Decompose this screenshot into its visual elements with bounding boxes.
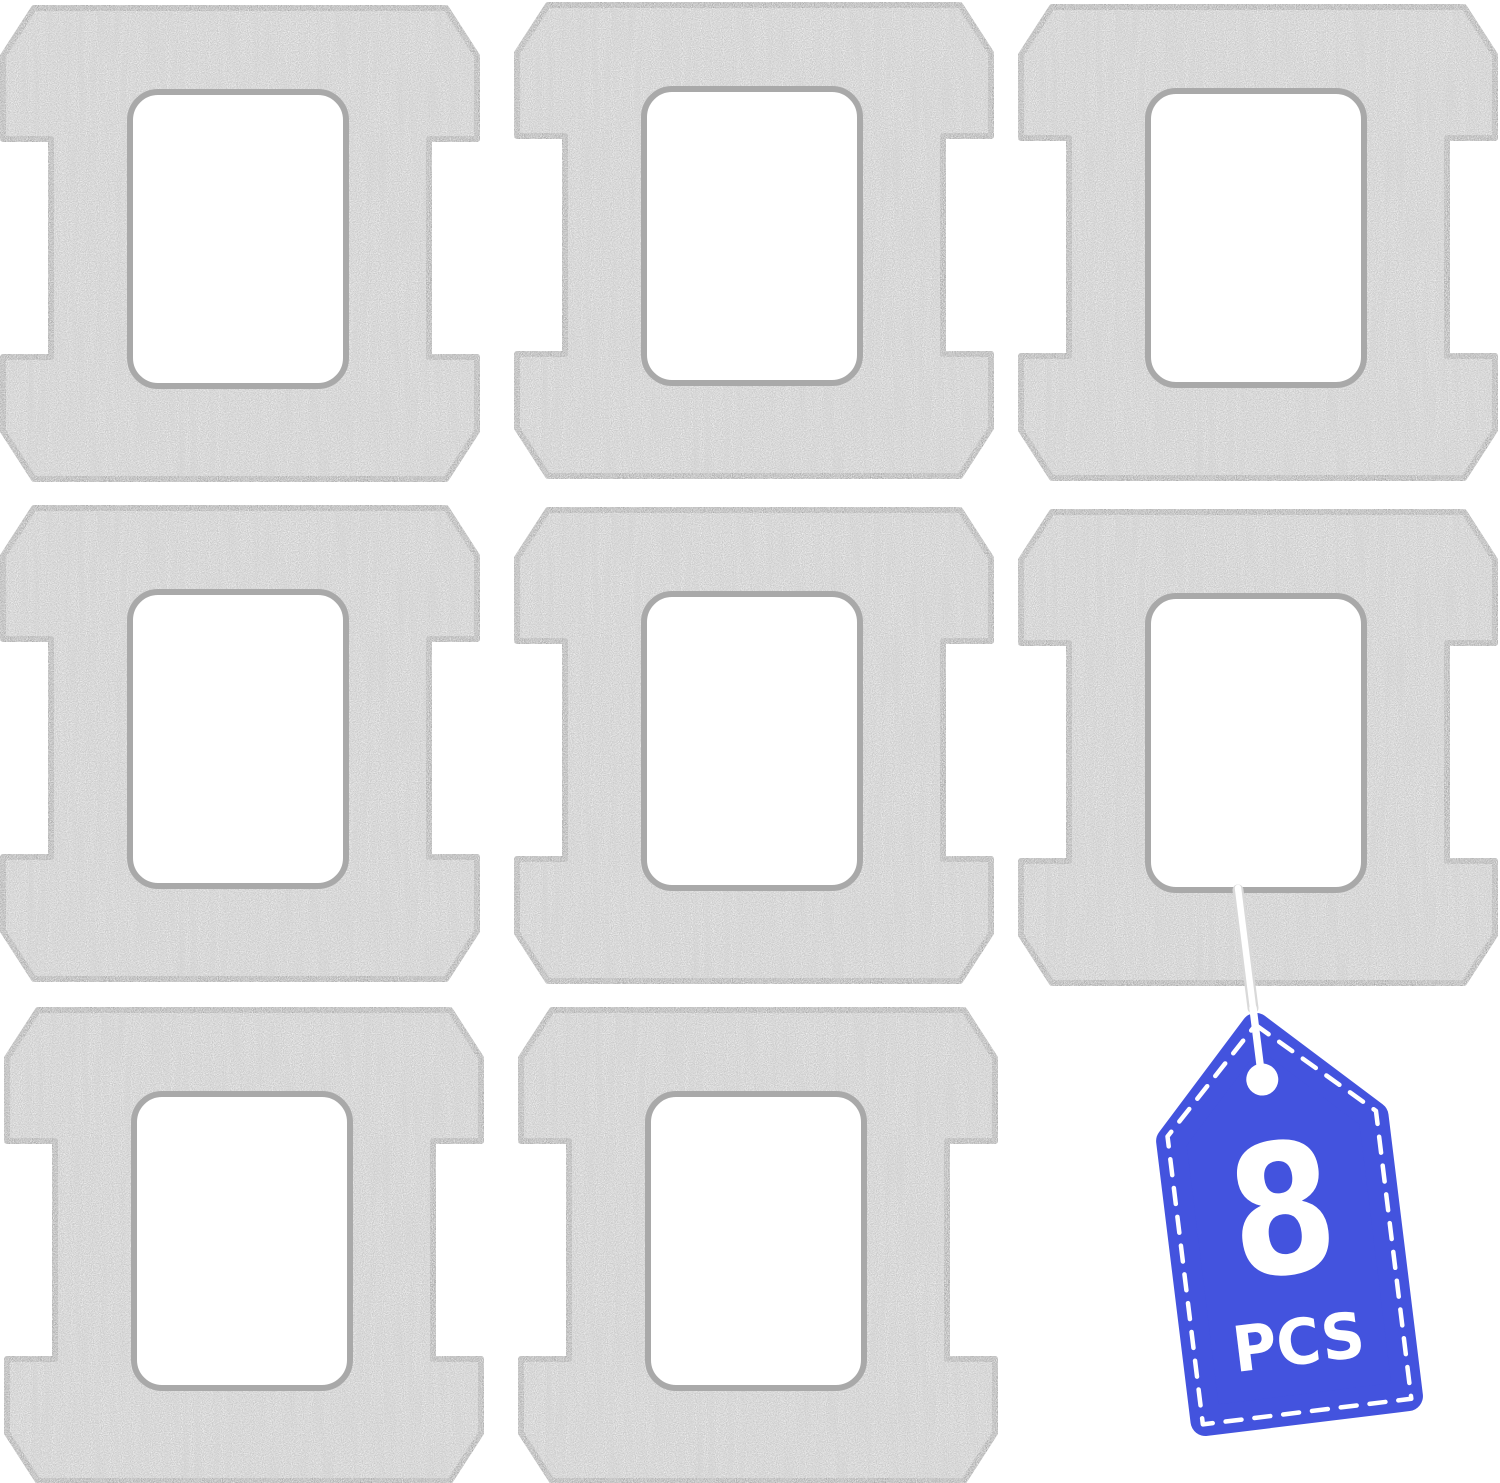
- mop-pad-5: [517, 510, 991, 981]
- mop-pad-4: [3, 508, 477, 979]
- mop-pad-8: [521, 1010, 995, 1481]
- mop-pad-1: [3, 8, 477, 479]
- mop-pad-3: [1021, 7, 1495, 478]
- mop-pad-2: [517, 5, 991, 476]
- mop-pad-7: [7, 1010, 481, 1481]
- product-image: 8 PCS: [0, 0, 1500, 1483]
- mop-pad-6: [1021, 512, 1495, 983]
- quantity-tag: 8 PCS: [1155, 1012, 1411, 1425]
- scene-svg: 8 PCS: [0, 0, 1500, 1483]
